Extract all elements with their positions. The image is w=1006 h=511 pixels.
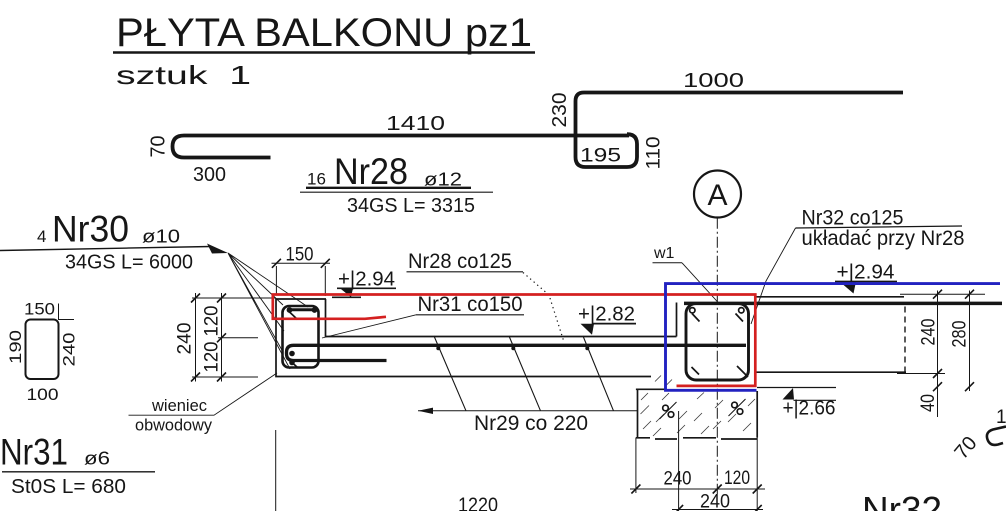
svg-text:100: 100	[27, 385, 59, 404]
svg-text:34GS L= 3315: 34GS L= 3315	[347, 195, 475, 217]
svg-text:120: 120	[202, 306, 223, 337]
svg-text:1410: 1410	[386, 113, 445, 135]
svg-text:ø10: ø10	[142, 227, 180, 247]
svg-text:70: 70	[148, 136, 170, 158]
svg-text:PŁYTA BALKONU pz1: PŁYTA BALKONU pz1	[116, 11, 532, 55]
svg-text:150: 150	[24, 300, 55, 319]
svg-text:240: 240	[60, 333, 79, 367]
svg-text:St0S L= 680: St0S L= 680	[11, 476, 126, 498]
svg-text:Nr30: Nr30	[52, 209, 129, 250]
svg-text:+|2.66: +|2.66	[783, 398, 836, 420]
svg-text:110: 110	[644, 137, 665, 170]
svg-text:1000: 1000	[683, 70, 744, 92]
svg-text:ø12: ø12	[424, 170, 462, 190]
svg-text:wieniec: wieniec	[151, 396, 207, 415]
svg-text:120: 120	[724, 468, 750, 489]
svg-text:Nr31 co150: Nr31 co150	[418, 293, 523, 316]
svg-text:40: 40	[918, 394, 939, 412]
svg-text:1: 1	[996, 407, 1006, 428]
svg-text:240: 240	[664, 469, 692, 490]
svg-text:1220: 1220	[458, 495, 498, 511]
svg-text:280: 280	[950, 321, 971, 348]
svg-text:195: 195	[580, 146, 621, 167]
svg-text:Nr32: Nr32	[862, 490, 942, 511]
svg-text:240: 240	[919, 319, 940, 346]
svg-text:+|2.94: +|2.94	[837, 262, 895, 284]
svg-text:120: 120	[202, 342, 223, 373]
svg-text:w1: w1	[653, 245, 675, 262]
svg-text:4: 4	[37, 227, 46, 246]
svg-text:układać przy Nr28: układać przy Nr28	[802, 227, 965, 250]
svg-text:240: 240	[175, 323, 196, 355]
svg-text:240: 240	[700, 492, 730, 511]
svg-text:Nr28 co125: Nr28 co125	[408, 250, 512, 273]
svg-text:sztuk 1: sztuk 1	[116, 60, 251, 90]
svg-text:16: 16	[307, 170, 326, 189]
svg-text:230: 230	[549, 93, 571, 128]
svg-text:Nr28: Nr28	[334, 151, 408, 192]
svg-text:190: 190	[6, 330, 25, 364]
svg-text:A: A	[707, 179, 727, 212]
svg-text:300: 300	[193, 164, 226, 186]
svg-text:+|2.94: +|2.94	[338, 269, 395, 291]
svg-text:150: 150	[286, 245, 314, 266]
svg-text:+|2.82: +|2.82	[578, 304, 635, 326]
svg-text:obwodowy: obwodowy	[135, 416, 212, 435]
svg-text:Nr31: Nr31	[0, 432, 68, 473]
svg-text:Nr29 co 220: Nr29 co 220	[474, 412, 588, 435]
svg-text:ø6: ø6	[84, 449, 110, 469]
svg-text:34GS L= 6000: 34GS L= 6000	[65, 252, 193, 274]
